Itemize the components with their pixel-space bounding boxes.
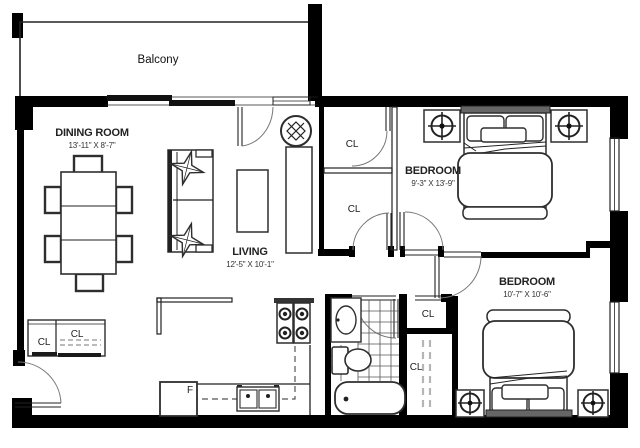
dining-table-set [45, 156, 132, 291]
bedroom1-dims: 9'-3" X 13'-9" [411, 179, 455, 188]
entry-door-arc [18, 362, 61, 403]
hall-closet-lower-label: CL [348, 204, 361, 215]
dining-room-label: DINING ROOM [55, 127, 129, 139]
linen-closet-sliding-doors [423, 340, 430, 412]
living-room-label: LIVING [232, 246, 267, 258]
bed1-headboard [461, 106, 550, 113]
bed1-door-threshold [405, 250, 438, 255]
console-table [286, 147, 312, 253]
bedroom2-dims: 10'-7" X 10'-6" [503, 290, 551, 299]
bedroom2-furniture [456, 310, 608, 417]
bedroom2-label: BEDROOM [499, 276, 555, 288]
hall-closet-west-wall [319, 107, 324, 256]
bed1-accent-pillow [481, 128, 526, 142]
balcony-label: Balcony [138, 54, 179, 66]
linen-closet-label: CL [410, 362, 423, 373]
dining-room-dims: 13'-11" X 8'-7" [69, 141, 116, 150]
left-wall [17, 128, 24, 356]
slider-panel-1 [107, 95, 172, 101]
hall-closet-divider-wall [324, 168, 392, 173]
entry-closet-track [58, 353, 101, 357]
entry-closet-left-label: CL [38, 337, 51, 348]
right-wall-upper [610, 96, 628, 139]
bedroom1-furniture [424, 106, 587, 219]
entry-closet-right-label: CL [71, 329, 84, 340]
bedroom-divider-wall-right [588, 241, 612, 248]
bathtub [335, 382, 405, 414]
small-closet-door-line [415, 296, 441, 300]
linen-closet [423, 340, 430, 412]
floorplan-canvas: F [0, 0, 640, 448]
dining-table [61, 172, 116, 274]
hall-closet-east-wall [392, 107, 397, 250]
bathroom-door-arc [356, 299, 396, 338]
right-wall-lower [610, 373, 628, 428]
bathroom-door-leaf [394, 299, 398, 338]
bed1-duvet [458, 153, 552, 207]
top-left-corner-wall [15, 96, 33, 130]
kitchen-pony-wall-h [157, 298, 232, 302]
hall-closet-upper-door-leaf [386, 107, 390, 131]
small-closet-label: CL [422, 309, 435, 320]
bed2-door-threshold [444, 252, 481, 257]
kitchen-sink [237, 385, 279, 411]
dining-chair [116, 187, 132, 213]
linen-closet-top-wall [407, 328, 452, 334]
balcony-left-stub [12, 13, 23, 38]
bedroom-divider-wall-left [481, 252, 589, 258]
bedroom1-door-arc [405, 212, 443, 250]
bed1-foot-blanket [463, 207, 547, 219]
dining-chair [45, 187, 61, 213]
bed2-headboard [486, 410, 572, 417]
dining-chair [45, 236, 61, 262]
bed2-duvet [483, 321, 574, 378]
toilet [332, 347, 371, 374]
hall-closet-lower-door-leaf [387, 213, 391, 250]
bedroom2-door-arc [439, 256, 481, 298]
bedroom1-label: BEDROOM [405, 165, 461, 177]
slider-panel-2 [169, 100, 235, 106]
ceiling-light-icon [281, 116, 311, 146]
hall-closet-upper-label: CL [346, 139, 359, 150]
sink-faucet-dot [336, 318, 339, 321]
sofa-armrest [196, 245, 212, 252]
balcony-door-arc [242, 107, 273, 146]
balcony-party-wall [308, 4, 322, 101]
coffee-table [237, 170, 268, 232]
bedroom1-door-leaf [400, 212, 404, 250]
kitchen-pony-wall-v [157, 298, 161, 334]
bed2-accent-pillow [502, 385, 548, 399]
living-furniture [168, 116, 312, 256]
hall-door-jamb-1 [349, 246, 355, 257]
bedroom2-door-leaf [435, 256, 439, 298]
bathroom-west-wall [325, 294, 331, 421]
hall-closet-lower-door-arc [353, 213, 389, 250]
top-wall-right [315, 96, 628, 107]
balcony-door-leaf [238, 107, 242, 146]
dining-chair [116, 236, 132, 262]
kitchen: F [160, 298, 314, 416]
fridge-label: F [187, 385, 193, 396]
dining-chair [76, 274, 103, 291]
left-wall-door-jamb [13, 350, 25, 366]
right-wall-middle [610, 211, 628, 302]
living-room-dims: 12'-5" X 10'-1" [226, 260, 274, 269]
entry-closet-track [32, 352, 57, 356]
dining-chair [74, 156, 102, 173]
sofa-armrest [196, 150, 212, 157]
